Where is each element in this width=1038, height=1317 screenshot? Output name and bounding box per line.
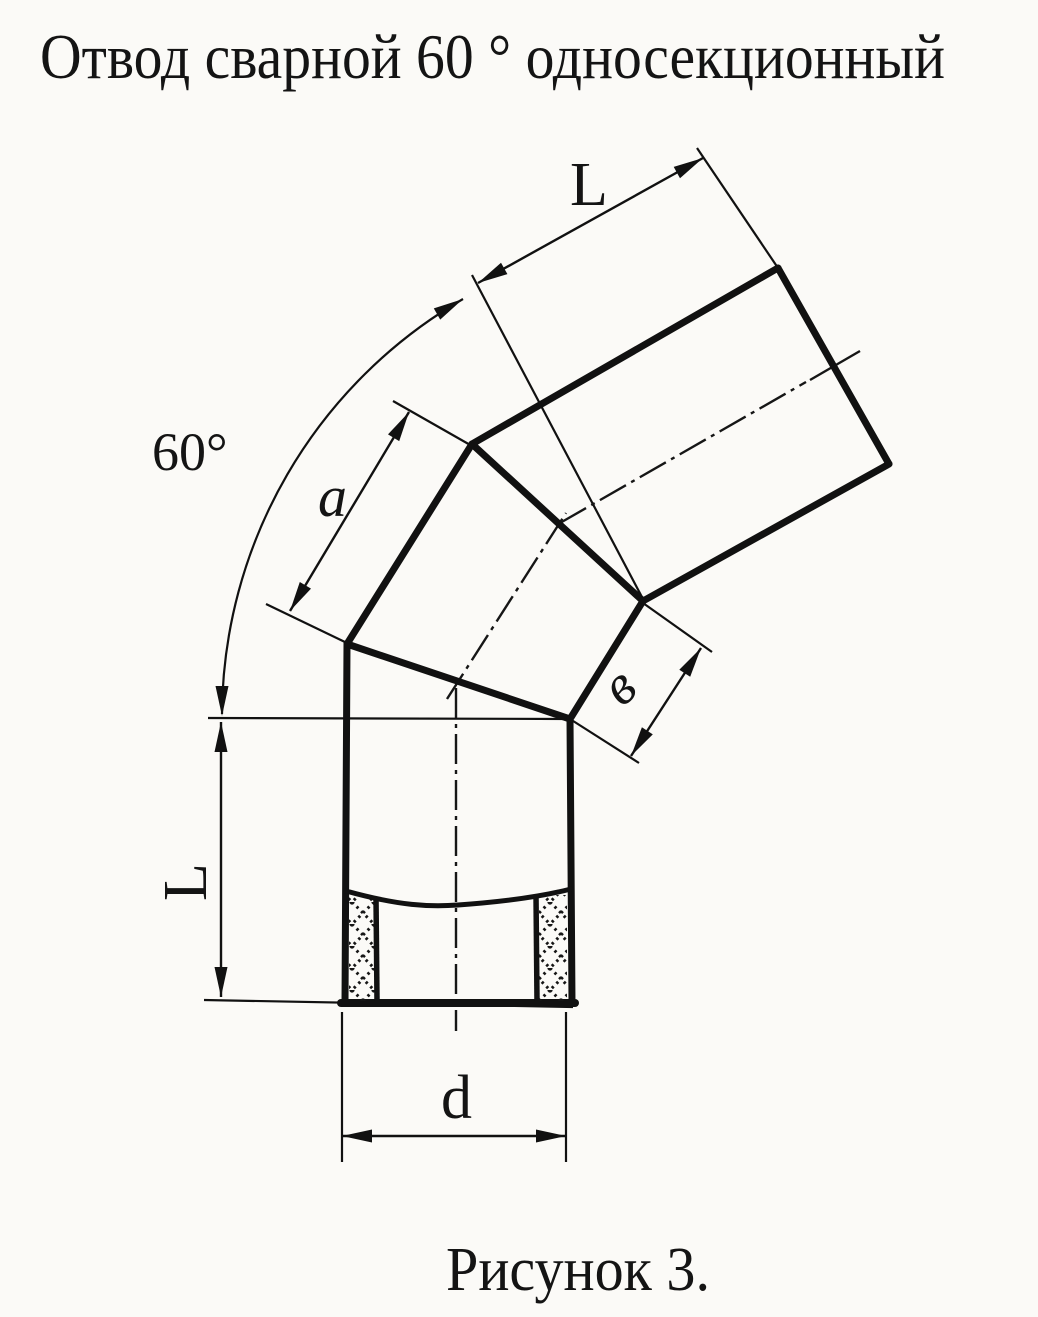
vertical-pipe-right-wall — [570, 719, 572, 1003]
dimension-label-a: a — [318, 464, 347, 529]
arrowhead — [388, 412, 409, 441]
dimension-label-d: d — [441, 1064, 472, 1132]
arrowhead — [342, 1130, 372, 1143]
extension-line-left-L-top — [208, 718, 570, 719]
arrowhead — [674, 158, 703, 178]
dimension-label-L-left: L — [152, 863, 220, 901]
arrowhead — [215, 722, 228, 752]
centerline-upper-pipe — [560, 382, 806, 523]
pipe-outline — [341, 268, 889, 1003]
wall-section — [346, 889, 571, 1001]
extension-line-b-lower — [570, 719, 639, 763]
drawing-canvas: Отвод сварной 60 ° односекционный — [0, 0, 1038, 1317]
arrowhead — [679, 648, 701, 677]
weld-seam-upper — [472, 444, 643, 601]
inner-bore-edge-right — [536, 895, 537, 1001]
dimension-label-L-top: L — [570, 151, 608, 219]
vertical-pipe-left-wall — [345, 644, 347, 1003]
arrowhead — [216, 686, 229, 716]
extension-lines — [204, 148, 778, 1162]
upper-pipe-end-face — [778, 268, 889, 464]
dimension-angle-60: 60° — [152, 299, 463, 716]
extension-line-upper-L-far — [697, 148, 778, 268]
upper-pipe-top-edge — [472, 268, 778, 444]
arrowhead — [536, 1130, 566, 1143]
extension-line-a-lower — [266, 604, 347, 643]
dimension-label-b: в — [589, 655, 649, 717]
wall-section-hatch-right — [539, 895, 567, 1001]
inner-bore-edge-left — [376, 897, 377, 1001]
arrowhead — [631, 727, 653, 756]
arrowhead — [478, 263, 507, 283]
arrowhead — [434, 299, 463, 320]
extension-line-b-upper — [643, 603, 712, 652]
wall-section-hatch-left — [349, 895, 375, 1001]
dimension-b: в — [589, 648, 701, 756]
middle-section-outer-edge — [347, 444, 472, 644]
extension-line-upper-L-near — [472, 275, 643, 599]
upper-pipe-bottom-edge — [643, 464, 889, 601]
page-title: Отвод сварной 60 ° односекционный — [40, 21, 945, 92]
dimension-label-angle: 60° — [152, 422, 228, 482]
arrowhead — [290, 582, 311, 611]
dimension-L-top: L — [478, 151, 703, 283]
scanned-drawing-sheet: Отвод сварной 60 ° односекционный — [0, 0, 1038, 1317]
centerline-middle-section — [447, 513, 566, 699]
weld-seam-lower — [347, 644, 570, 719]
arrowhead — [215, 967, 228, 997]
dimension-L-left: L — [152, 722, 228, 997]
dimension-d: d — [342, 1064, 566, 1143]
figure-caption: Рисунок 3. — [446, 1236, 710, 1304]
